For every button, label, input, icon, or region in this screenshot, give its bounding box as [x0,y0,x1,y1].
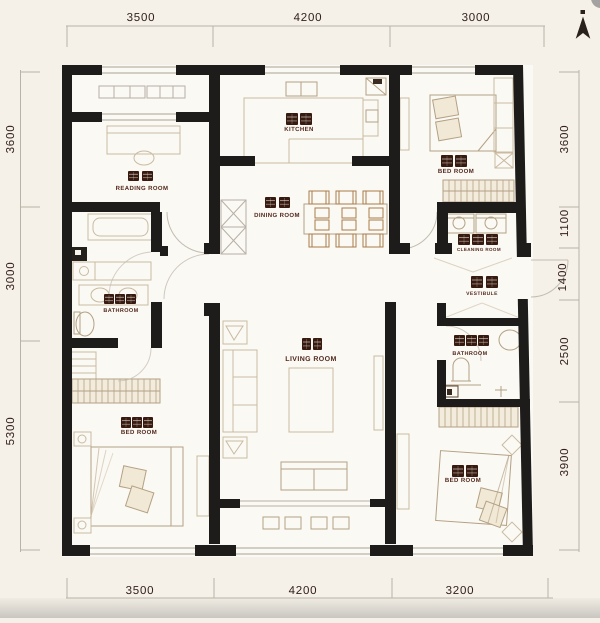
svg-text:3600: 3600 [5,125,17,154]
svg-text:4200: 4200 [294,12,323,24]
svg-text:3000: 3000 [5,262,17,291]
svg-text:3500: 3500 [127,12,156,24]
svg-text:BED ROOM: BED ROOM [445,477,481,484]
svg-text:3200: 3200 [446,585,475,597]
svg-text:BED ROOM: BED ROOM [438,168,474,175]
svg-text:1100: 1100 [559,209,571,237]
svg-text:VESTIBULE: VESTIBULE [466,291,498,297]
svg-text:READING ROOM: READING ROOM [116,185,169,192]
svg-text:4200: 4200 [289,585,318,597]
svg-text:BATHROOM: BATHROOM [103,308,138,314]
svg-text:3600: 3600 [559,125,571,154]
svg-text:1400: 1400 [557,263,569,292]
svg-text:KITCHEN: KITCHEN [284,126,313,133]
svg-text:2500: 2500 [559,337,571,366]
svg-text:LIVING ROOM: LIVING ROOM [285,356,336,363]
svg-text:BED ROOM: BED ROOM [121,429,157,436]
svg-text:BATHROOM: BATHROOM [452,351,487,357]
svg-text:5300: 5300 [5,417,17,446]
svg-text:CLEANING ROOM: CLEANING ROOM [457,247,501,252]
svg-text:DINING ROOM: DINING ROOM [254,212,300,219]
svg-text:3500: 3500 [126,585,155,597]
svg-text:3900: 3900 [559,448,571,477]
svg-text:3000: 3000 [462,12,491,24]
